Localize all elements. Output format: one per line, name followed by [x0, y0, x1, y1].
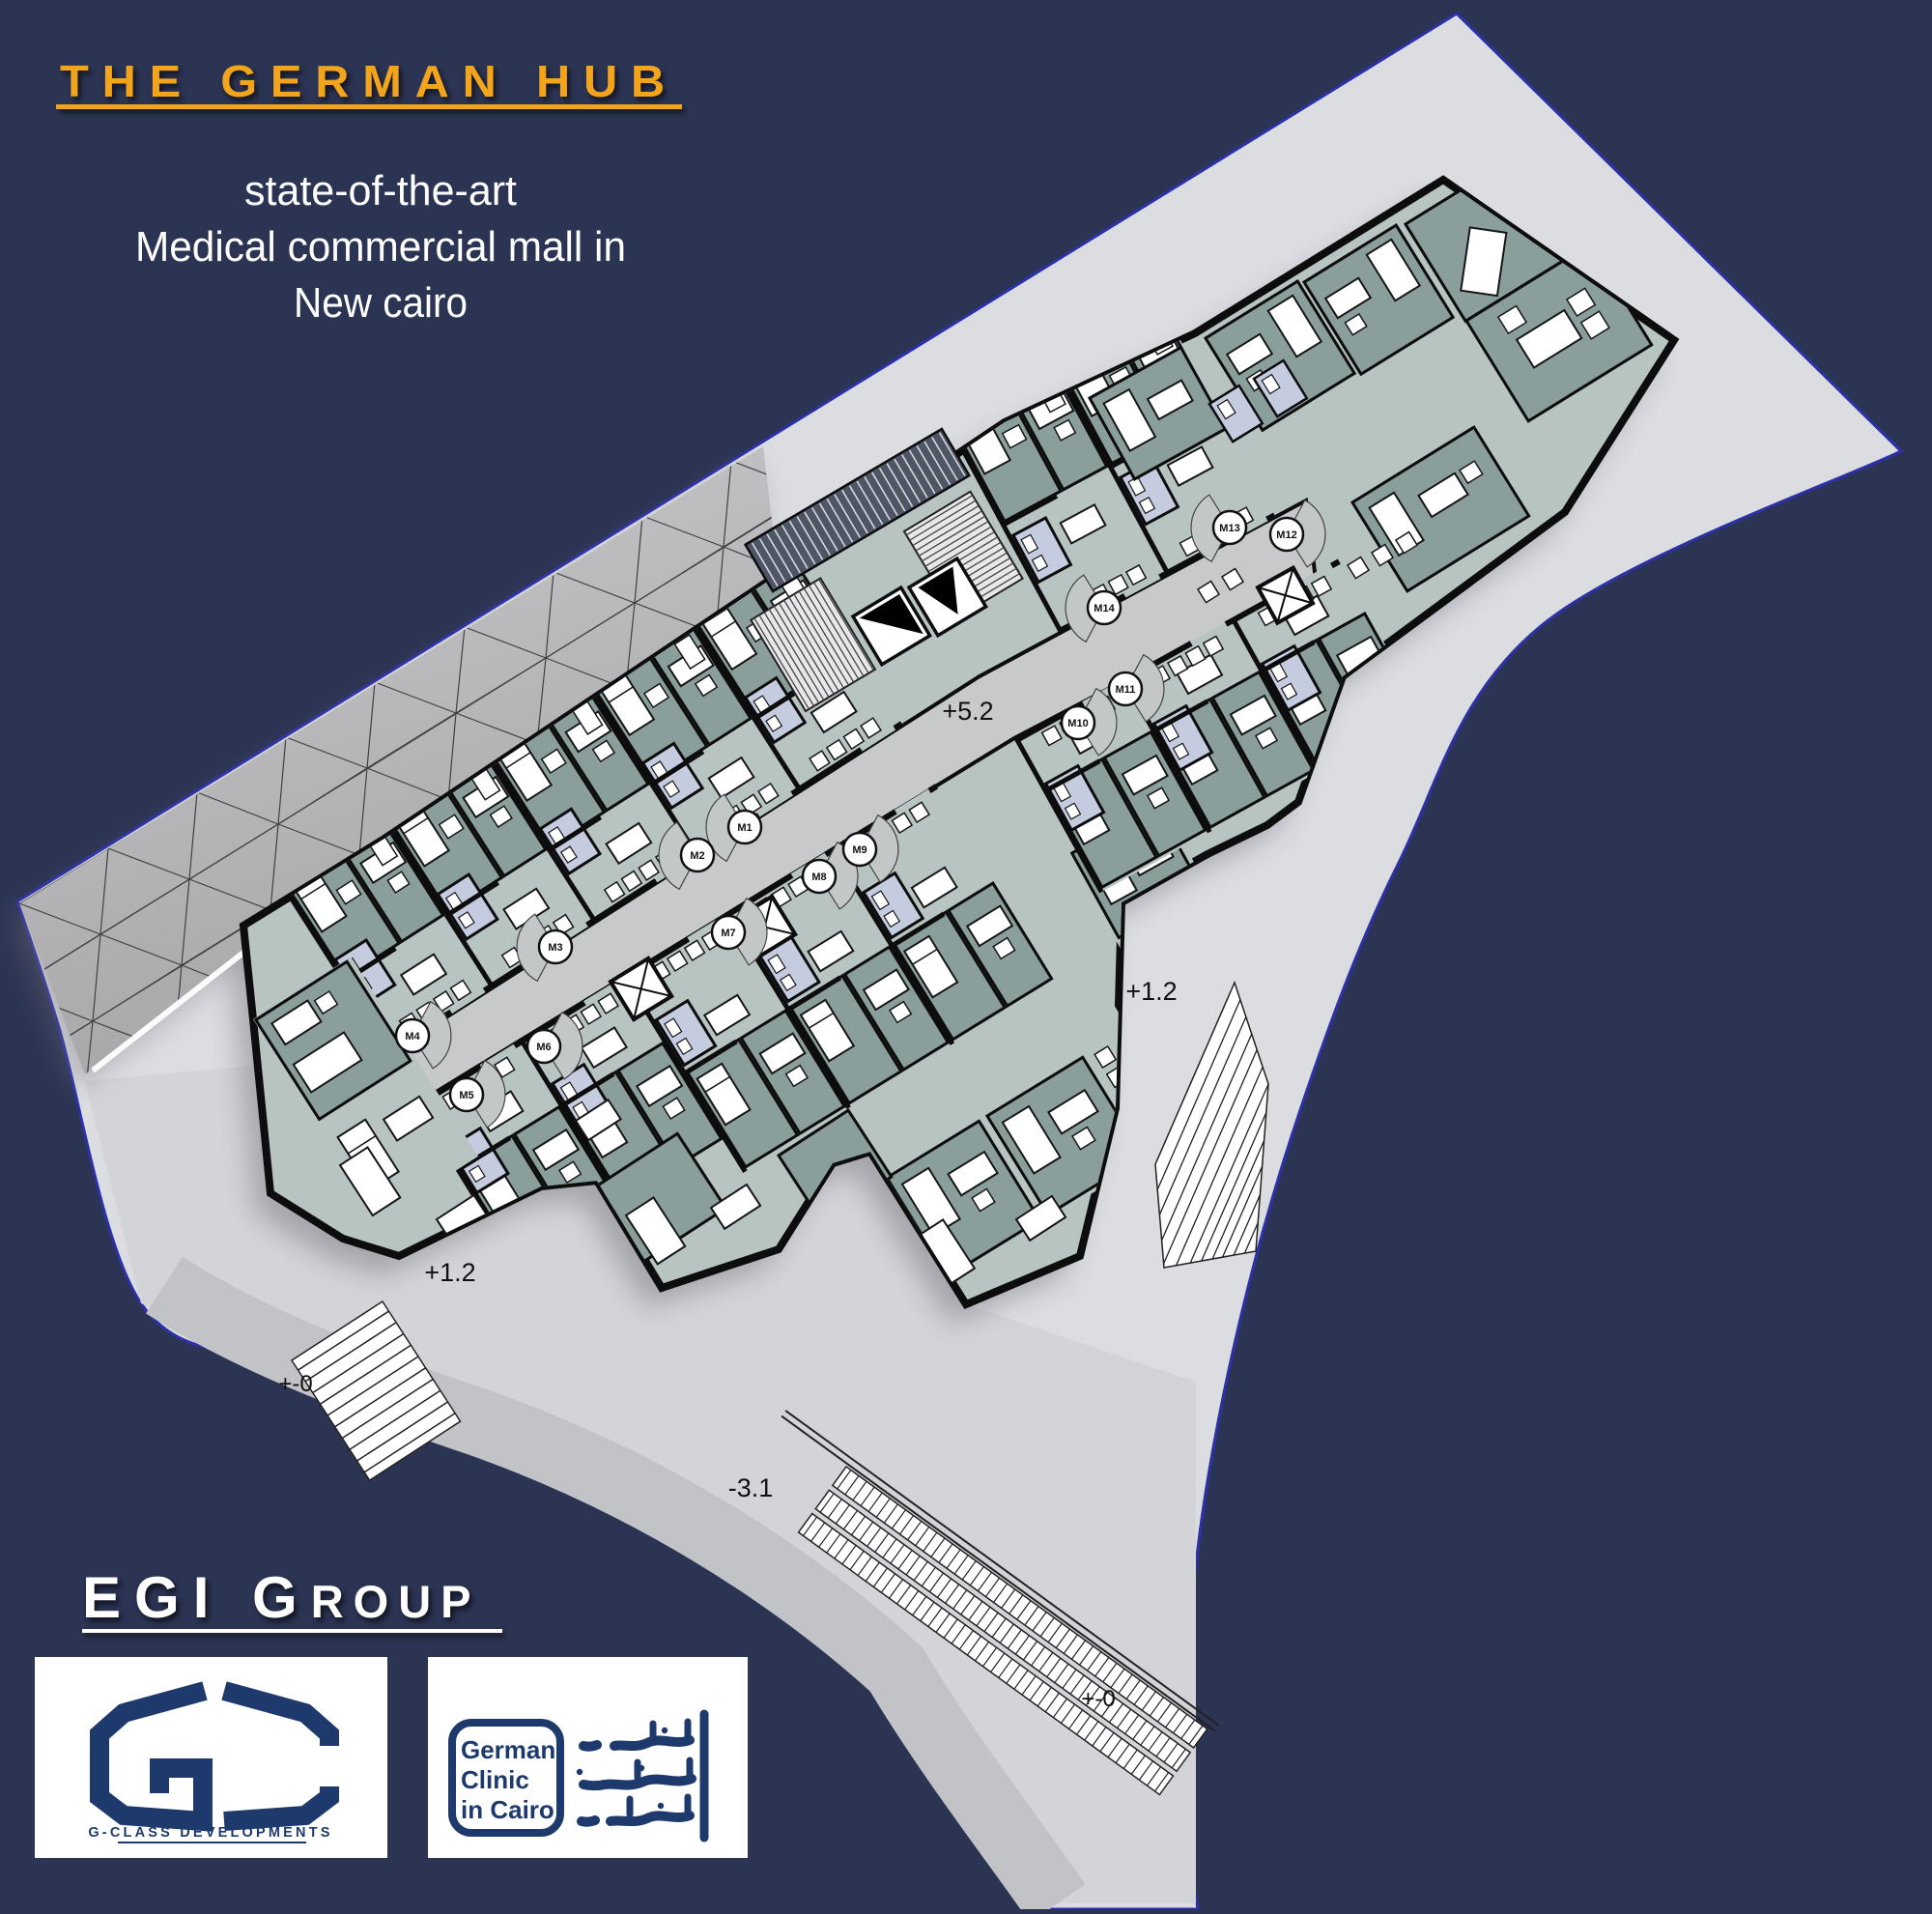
svg-text:M9: M9: [852, 844, 867, 856]
svg-text:M14: M14: [1094, 603, 1115, 614]
svg-text:+-0: +-0: [1081, 1686, 1115, 1712]
svg-text:M6: M6: [536, 1042, 551, 1053]
svg-text:M8: M8: [811, 871, 826, 883]
svg-text:M7: M7: [721, 928, 735, 939]
svg-text:THE GERMAN HUB: THE GERMAN HUB: [60, 56, 678, 106]
svg-text:Medical commercial mall in: Medical commercial mall in: [135, 223, 626, 271]
svg-text:+1.2: +1.2: [424, 1258, 475, 1287]
svg-text:+5.2: +5.2: [942, 697, 993, 726]
svg-text:New cairo: New cairo: [294, 279, 468, 327]
svg-text:M4: M4: [405, 1031, 420, 1043]
svg-text:M1: M1: [737, 822, 752, 834]
svg-text:-3.1: -3.1: [728, 1473, 774, 1502]
svg-text:M3: M3: [548, 942, 562, 954]
svg-text:Clinic: Clinic: [461, 1765, 529, 1794]
svg-text:state-of-the-art: state-of-the-art: [244, 167, 517, 214]
svg-text:EGI GROUP: EGI GROUP: [82, 1565, 481, 1630]
svg-text:G-CLASS DEVELOPMENTS: G-CLASS DEVELOPMENTS: [88, 1825, 332, 1841]
svg-text:M2: M2: [690, 850, 704, 862]
svg-text:M13: M13: [1219, 523, 1239, 534]
svg-text:M12: M12: [1276, 529, 1296, 541]
svg-text:German: German: [461, 1735, 555, 1764]
svg-text:M10: M10: [1067, 718, 1088, 729]
svg-text:+1.2: +1.2: [1125, 977, 1177, 1006]
svg-text:M11: M11: [1116, 684, 1136, 696]
svg-text:in Cairo: in Cairo: [461, 1795, 554, 1824]
svg-text:M5: M5: [459, 1090, 473, 1101]
svg-text:+-0: +-0: [278, 1371, 312, 1397]
